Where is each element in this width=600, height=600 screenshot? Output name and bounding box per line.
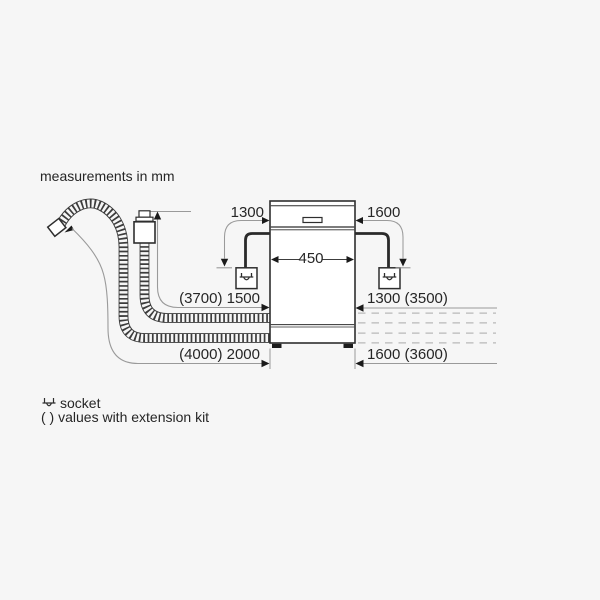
label-supply-hose-left: (3700) 1500 — [126, 291, 260, 306]
legend-extension-note: ( ) values with extension kit — [41, 410, 209, 425]
label-appliance-width: 450 — [283, 251, 339, 266]
aquastop-valve — [134, 211, 155, 243]
socket-left — [236, 268, 257, 289]
label-drain-hose-left: (4000) 2000 — [126, 347, 260, 362]
arrow-down-icon — [221, 259, 228, 267]
power-cable-left — [246, 234, 272, 269]
units-note: measurements in mm — [40, 168, 175, 184]
label-supply-hose-right: 1300 (3500) — [367, 291, 448, 306]
arrow-down-icon — [399, 259, 406, 267]
dimension-socket-right — [356, 217, 411, 268]
appliance-foot-right — [344, 344, 354, 348]
arrow-right-icon — [262, 304, 270, 311]
installation-diagram: measurements in mm 1300 1600 450 (3700) … — [0, 0, 600, 600]
dishwasher — [270, 201, 355, 369]
diagram-canvas — [0, 0, 600, 600]
appliance-foot-left — [272, 344, 282, 348]
control-panel-display — [303, 218, 322, 223]
arrow-left-icon — [356, 217, 364, 224]
label-socket-right: 1600 — [367, 205, 400, 220]
extension-kit-dashed-lines — [358, 313, 496, 343]
arrow-left-icon — [356, 304, 364, 311]
label-socket-left: 1300 — [194, 205, 264, 220]
arrow-right-icon — [262, 360, 270, 367]
power-cable-right — [354, 234, 389, 269]
label-drain-hose-right: 1600 (3600) — [367, 347, 448, 362]
arrow-left-icon — [356, 360, 364, 367]
socket-right — [379, 268, 400, 289]
arrow-up-icon — [154, 212, 161, 220]
dimension-socket-left — [217, 217, 270, 268]
